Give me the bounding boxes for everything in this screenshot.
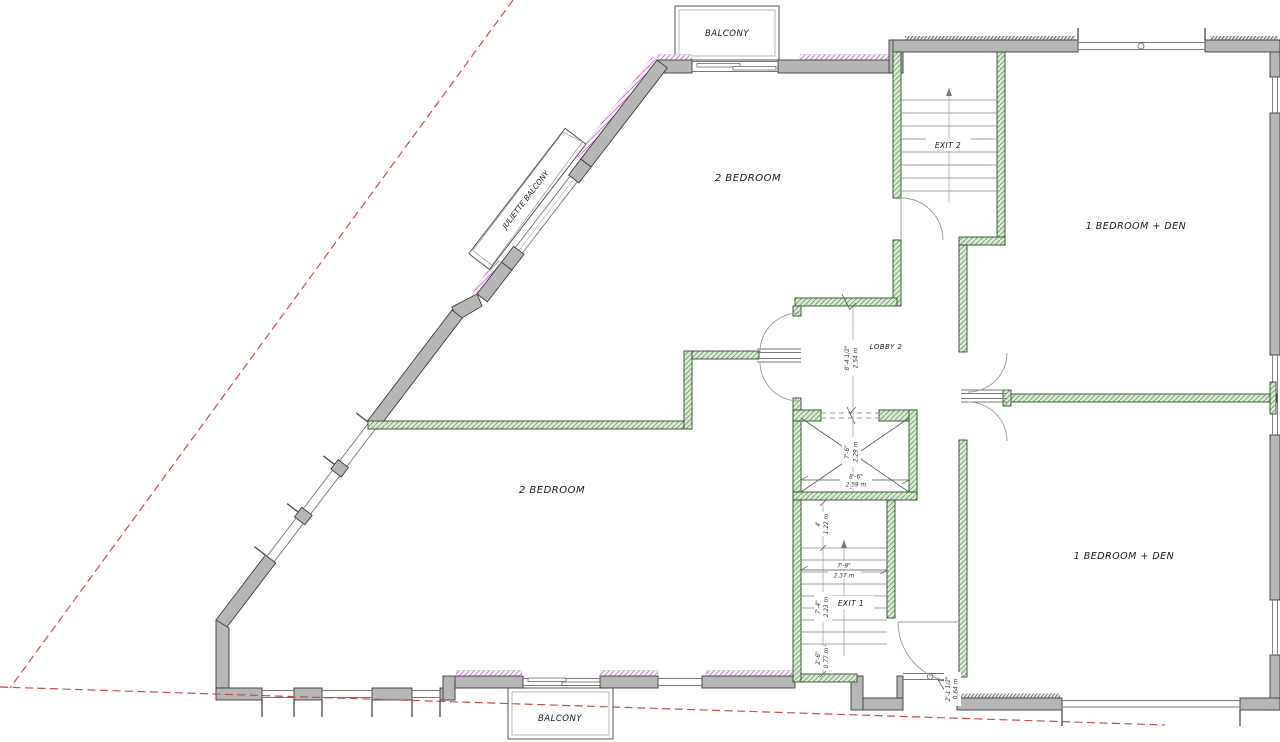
dim-wall-offset-ft: 2'-1 1/2" xyxy=(946,676,952,701)
wall-top-right-a xyxy=(893,40,1078,52)
dim-elevator-width-m: 2.59 m xyxy=(846,483,867,489)
balcony-bottom-label: BALCONY xyxy=(538,714,582,724)
dim-stair1-run-ft: 7'-4" xyxy=(816,600,822,614)
exit2-label: EXIT 2 xyxy=(935,141,961,150)
stair-exit1: EXIT 1 xyxy=(801,540,887,656)
floor-plan-canvas: BALCONY BALCONY xyxy=(0,0,1280,742)
wall-diagonal-lower-1 xyxy=(367,310,462,429)
wall-top-left-b xyxy=(778,60,893,73)
dim-lobby-ft: 8'-4 1/2" xyxy=(845,345,851,370)
dim-stair1-run-m: 2.23 m xyxy=(824,596,830,617)
wall-left-corner xyxy=(216,620,229,688)
wall-top-right-b xyxy=(1205,40,1280,52)
juliette-balcony: JULIETTE BALCONY xyxy=(469,128,586,269)
dim-stair1-landing-m: 1.22 m xyxy=(824,513,830,534)
door-arc-1br-top xyxy=(968,353,1007,392)
dim-stair1-width-ft: 7'-9" xyxy=(837,564,851,570)
wall-exit2-left xyxy=(893,52,901,198)
dim-wall-offset-m: 0.64 m xyxy=(954,678,960,699)
wall-elevator-bottom xyxy=(793,492,917,500)
door-arc-2br-top xyxy=(760,313,799,352)
label-2bedroom-top: 2 BEDROOM xyxy=(715,173,781,184)
wall-lobby-right-lower xyxy=(959,440,967,677)
label-1bed-den-bottom: 1 BEDROOM + DEN xyxy=(1074,551,1175,562)
dim-stair1-width-m: 2.37 m xyxy=(834,574,855,580)
exit1-label: EXIT 1 xyxy=(838,599,864,608)
wall-exit1-left xyxy=(793,500,801,682)
label-2bedroom-bottom: 2 BEDROOM xyxy=(519,485,585,496)
dim-lobby-m: 2.54 m xyxy=(854,347,860,368)
dim-elevator-depth-m: 2.29 m xyxy=(854,441,860,462)
property-lines xyxy=(0,0,1165,725)
wall-diagonal-upper-1 xyxy=(581,60,668,167)
balcony-top-label: BALCONY xyxy=(705,29,749,39)
sliding-door-bottom xyxy=(528,678,566,682)
wall-exit1-right xyxy=(887,500,895,618)
wall-demising-2br xyxy=(368,421,684,429)
wall-exit2-right xyxy=(997,52,1005,245)
wall-elevator-right xyxy=(909,410,917,500)
door-arc-1br-bottom xyxy=(968,402,1007,441)
wall-diagonal-lower-2 xyxy=(216,555,276,628)
wall-demising-1br xyxy=(1007,394,1277,402)
wall-exit1-bottom xyxy=(801,674,857,682)
interior-partitions xyxy=(368,52,1277,682)
dim-stair1-bottom-m: 0.77 m xyxy=(824,647,830,668)
wall-lobby-right-upper xyxy=(959,245,967,352)
balcony-top: BALCONY xyxy=(675,6,779,60)
label-1bed-den-top: 1 BEDROOM + DEN xyxy=(1086,221,1187,232)
wall-elevator-left xyxy=(793,421,801,492)
stair-exit2: EXIT 2 xyxy=(901,88,997,203)
dimensions: 8'-4 1/2" 2.54 m 7'-6" 2.29 m 8'-6" 2.59… xyxy=(801,303,961,706)
dim-stair1-landing-ft: 4' xyxy=(816,521,822,527)
floor-plan-drawing: BALCONY BALCONY xyxy=(0,0,1280,742)
door-arc-2br-bottom xyxy=(760,362,799,401)
door-arc-exit2 xyxy=(901,198,943,240)
balcony-bottom: BALCONY xyxy=(508,688,613,739)
dim-stair1-bottom-ft: 2'-6" xyxy=(816,651,822,665)
dim-elevator-depth-ft: 7'-6" xyxy=(845,445,851,459)
label-lobby: LOBBY 2 xyxy=(870,343,903,351)
dim-elevator-width-ft: 8'-6" xyxy=(849,475,863,481)
wall-bottom-step xyxy=(443,676,455,700)
exterior-walls-right-wing xyxy=(851,28,1280,726)
